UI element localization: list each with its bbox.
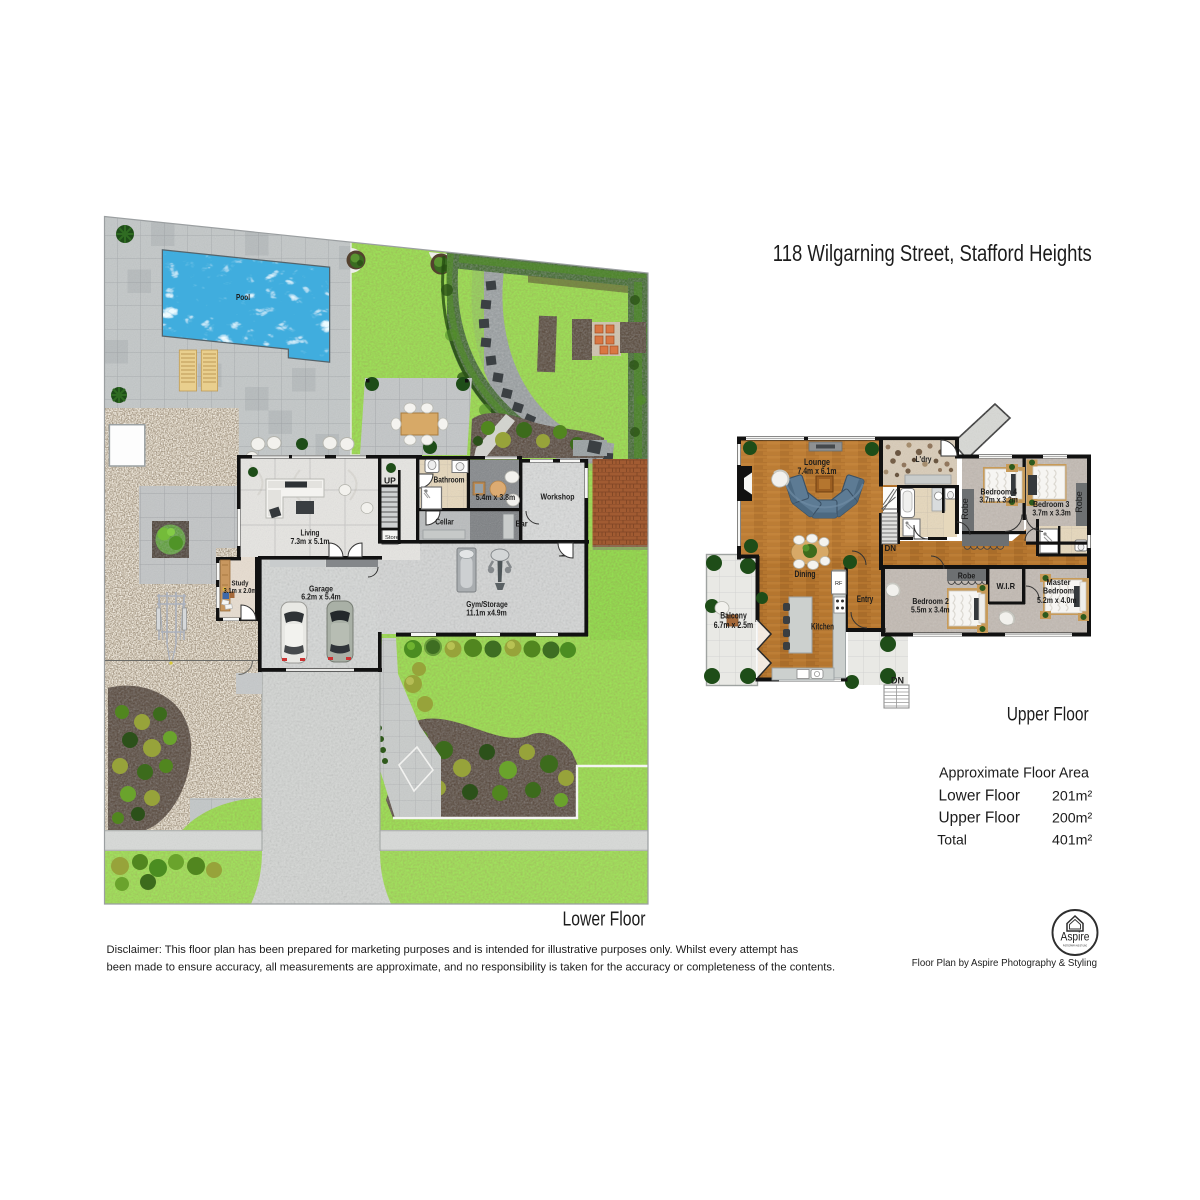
svg-text:Balcony: Balcony	[720, 611, 747, 621]
svg-text:7.4m x 6.1m: 7.4m x 6.1m	[798, 466, 837, 476]
svg-text:Lower Floor: Lower Floor	[939, 788, 1021, 805]
svg-text:Cellar: Cellar	[435, 517, 454, 527]
svg-text:11.1m x4.9m: 11.1m x4.9m	[466, 608, 507, 618]
svg-text:UP: UP	[384, 476, 396, 486]
svg-text:Lower Floor: Lower Floor	[563, 909, 646, 931]
svg-text:200m²: 200m²	[1052, 811, 1092, 827]
svg-text:Robe: Robe	[960, 498, 970, 520]
svg-text:Floor Plan by Aspire Photograp: Floor Plan by Aspire Photography & Styli…	[912, 958, 1097, 969]
svg-text:Robe: Robe	[958, 571, 976, 581]
svg-text:6.2m x 5.4m: 6.2m x 5.4m	[301, 592, 341, 602]
svg-text:118 Wilgarning Street, Staffor: 118 Wilgarning Street, Stafford Heights	[773, 240, 1092, 266]
svg-text:Bar: Bar	[516, 519, 529, 529]
svg-text:6.7m x 2.5m: 6.7m x 2.5m	[714, 620, 754, 630]
svg-text:Disclaimer: This floor plan ha: Disclaimer: This floor plan has been pre…	[107, 944, 799, 956]
svg-text:3.1m x 2.0m: 3.1m x 2.0m	[224, 586, 257, 595]
svg-text:401m²: 401m²	[1052, 833, 1092, 849]
svg-text:Total: Total	[937, 832, 967, 848]
svg-text:been made to ensure accuracy,: been made to ensure accuracy, all measur…	[107, 962, 836, 974]
svg-text:3.7m x 3.3m: 3.7m x 3.3m	[1032, 508, 1071, 518]
svg-text:3.7m x 3.2m: 3.7m x 3.2m	[979, 495, 1018, 505]
svg-text:Approximate Floor Area: Approximate Floor Area	[939, 766, 1090, 782]
svg-text:DN: DN	[891, 676, 904, 686]
svg-text:Upper Floor: Upper Floor	[939, 810, 1021, 827]
svg-text:5.4m x 3.8m: 5.4m x 3.8m	[476, 492, 516, 502]
svg-text:RF: RF	[835, 581, 843, 587]
svg-text:DN: DN	[885, 544, 897, 553]
svg-text:Kitchen: Kitchen	[811, 622, 834, 632]
svg-text:W.I.R: W.I.R	[997, 581, 1016, 591]
svg-text:Upper Floor: Upper Floor	[1007, 704, 1089, 726]
svg-text:201m²: 201m²	[1052, 789, 1092, 805]
svg-text:Dining: Dining	[795, 569, 816, 579]
svg-text:Bedroom: Bedroom	[1043, 586, 1074, 596]
svg-text:Pool: Pool	[236, 292, 250, 302]
svg-text:5.2m x 4.0m: 5.2m x 4.0m	[1037, 595, 1077, 605]
svg-text:Aspire: Aspire	[1061, 932, 1090, 944]
svg-text:L'dry: L'dry	[916, 454, 932, 464]
svg-text:PHOTOGRAPHY AND STYLING: PHOTOGRAPHY AND STYLING	[1063, 945, 1087, 948]
svg-text:5.5m x 3.4m: 5.5m x 3.4m	[911, 605, 950, 615]
svg-text:Robe: Robe	[1074, 491, 1084, 513]
svg-text:Workshop: Workshop	[541, 492, 575, 502]
svg-text:Bathroom: Bathroom	[434, 475, 465, 485]
svg-text:Entry: Entry	[857, 594, 874, 604]
svg-text:7.3m x 5.1m: 7.3m x 5.1m	[291, 536, 330, 546]
